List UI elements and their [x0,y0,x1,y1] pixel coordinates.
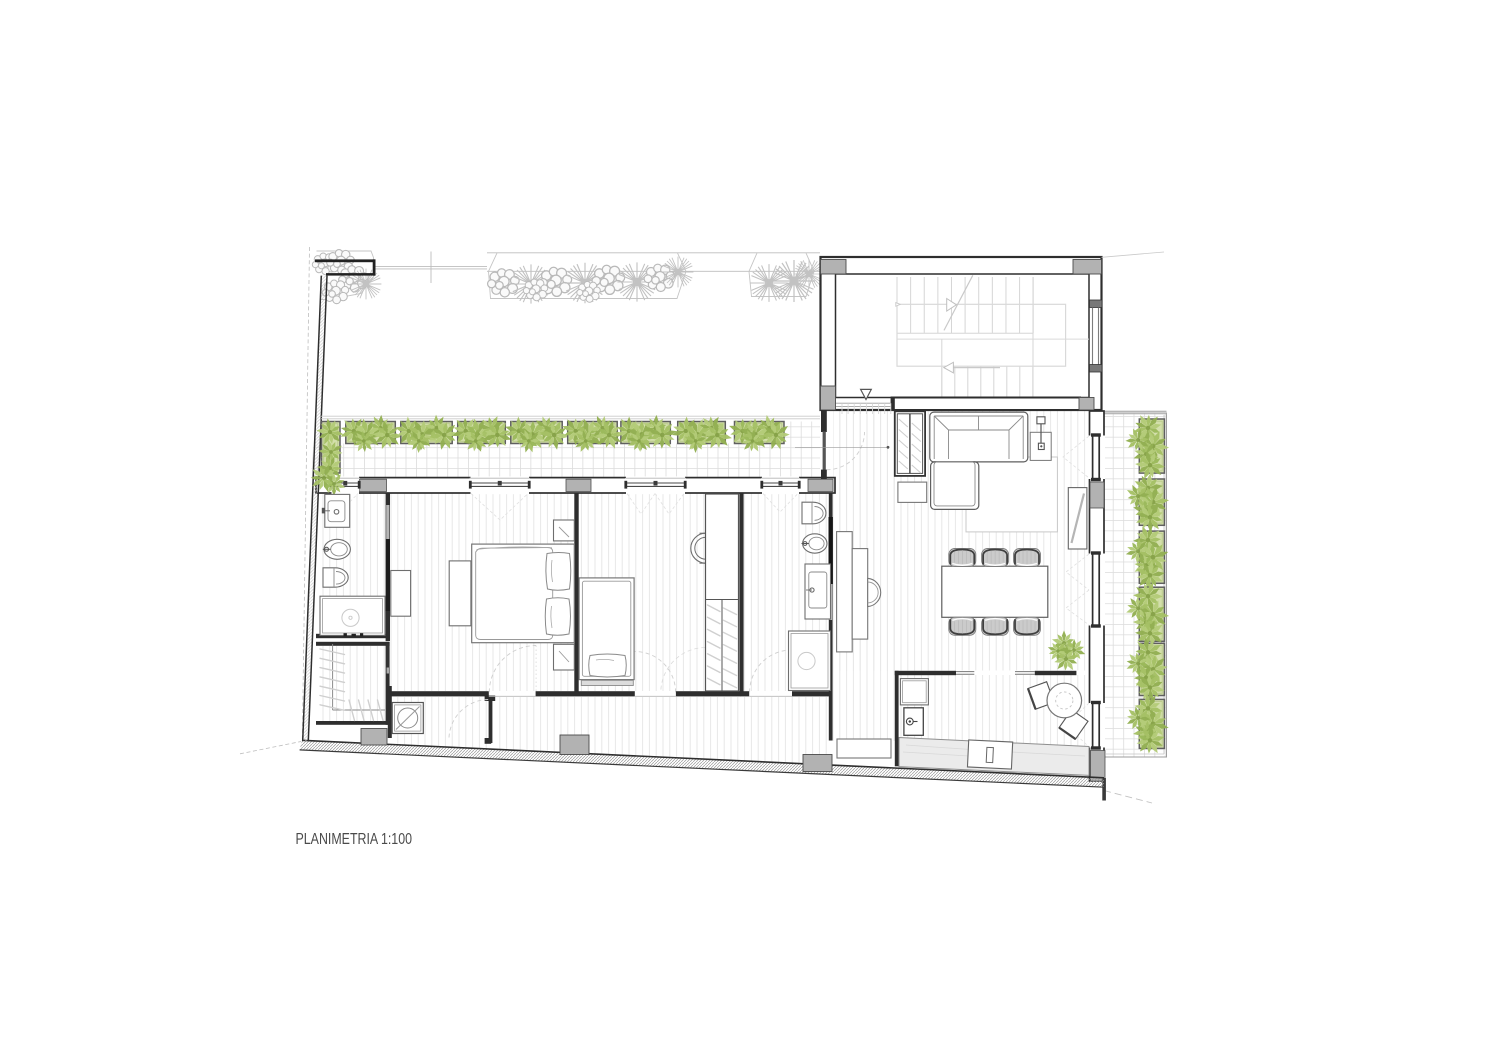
svg-text:PLANIMETRIA 1:100: PLANIMETRIA 1:100 [296,831,413,848]
